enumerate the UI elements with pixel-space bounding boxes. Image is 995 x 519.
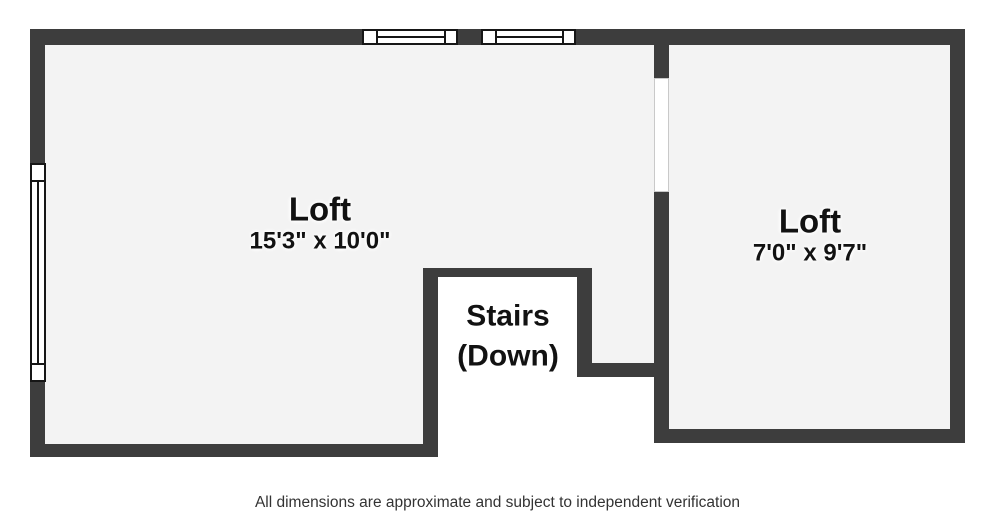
window-glass-line xyxy=(497,36,562,38)
bottom-exterior-wall-right-loft xyxy=(654,429,965,443)
window-left-wall xyxy=(30,163,46,382)
stairwell-top-wall xyxy=(423,268,592,277)
window-top-left xyxy=(362,29,458,45)
bottom-exterior-wall-left-loft xyxy=(30,444,438,457)
window-frame-line xyxy=(444,31,446,43)
stairs-label: Stairs (Down) xyxy=(457,296,559,375)
stairwell-right-wall xyxy=(577,268,592,377)
left-loft-name: Loft xyxy=(250,192,391,227)
window-frame-line xyxy=(562,31,564,43)
left-loft-label: Loft 15'3" x 10'0" xyxy=(250,192,391,255)
disclaimer-text: All dimensions are approximate and subje… xyxy=(0,494,995,512)
window-frame-line xyxy=(32,363,44,365)
window-glass-line xyxy=(37,182,39,363)
right-loft-label: Loft 7'0" x 9'7" xyxy=(753,204,867,267)
divider-wall-opening xyxy=(654,78,669,192)
stairs-label-line2: (Down) xyxy=(457,336,559,376)
right-exterior-wall xyxy=(950,29,965,443)
left-loft-dimensions: 15'3" x 10'0" xyxy=(250,227,391,256)
window-glass-line xyxy=(378,36,444,38)
left-loft-floor-above-stairs xyxy=(423,45,654,268)
left-loft-floor-beside-stairs xyxy=(592,268,654,363)
floor-plan: Loft 15'3" x 10'0" Loft 7'0" x 9'7" Stai… xyxy=(0,0,995,519)
right-loft-name: Loft xyxy=(753,204,867,239)
stairs-label-line1: Stairs xyxy=(457,296,559,336)
stairwell-left-wall xyxy=(423,268,438,457)
window-top-right xyxy=(481,29,576,45)
right-loft-dimensions: 7'0" x 9'7" xyxy=(753,239,867,268)
